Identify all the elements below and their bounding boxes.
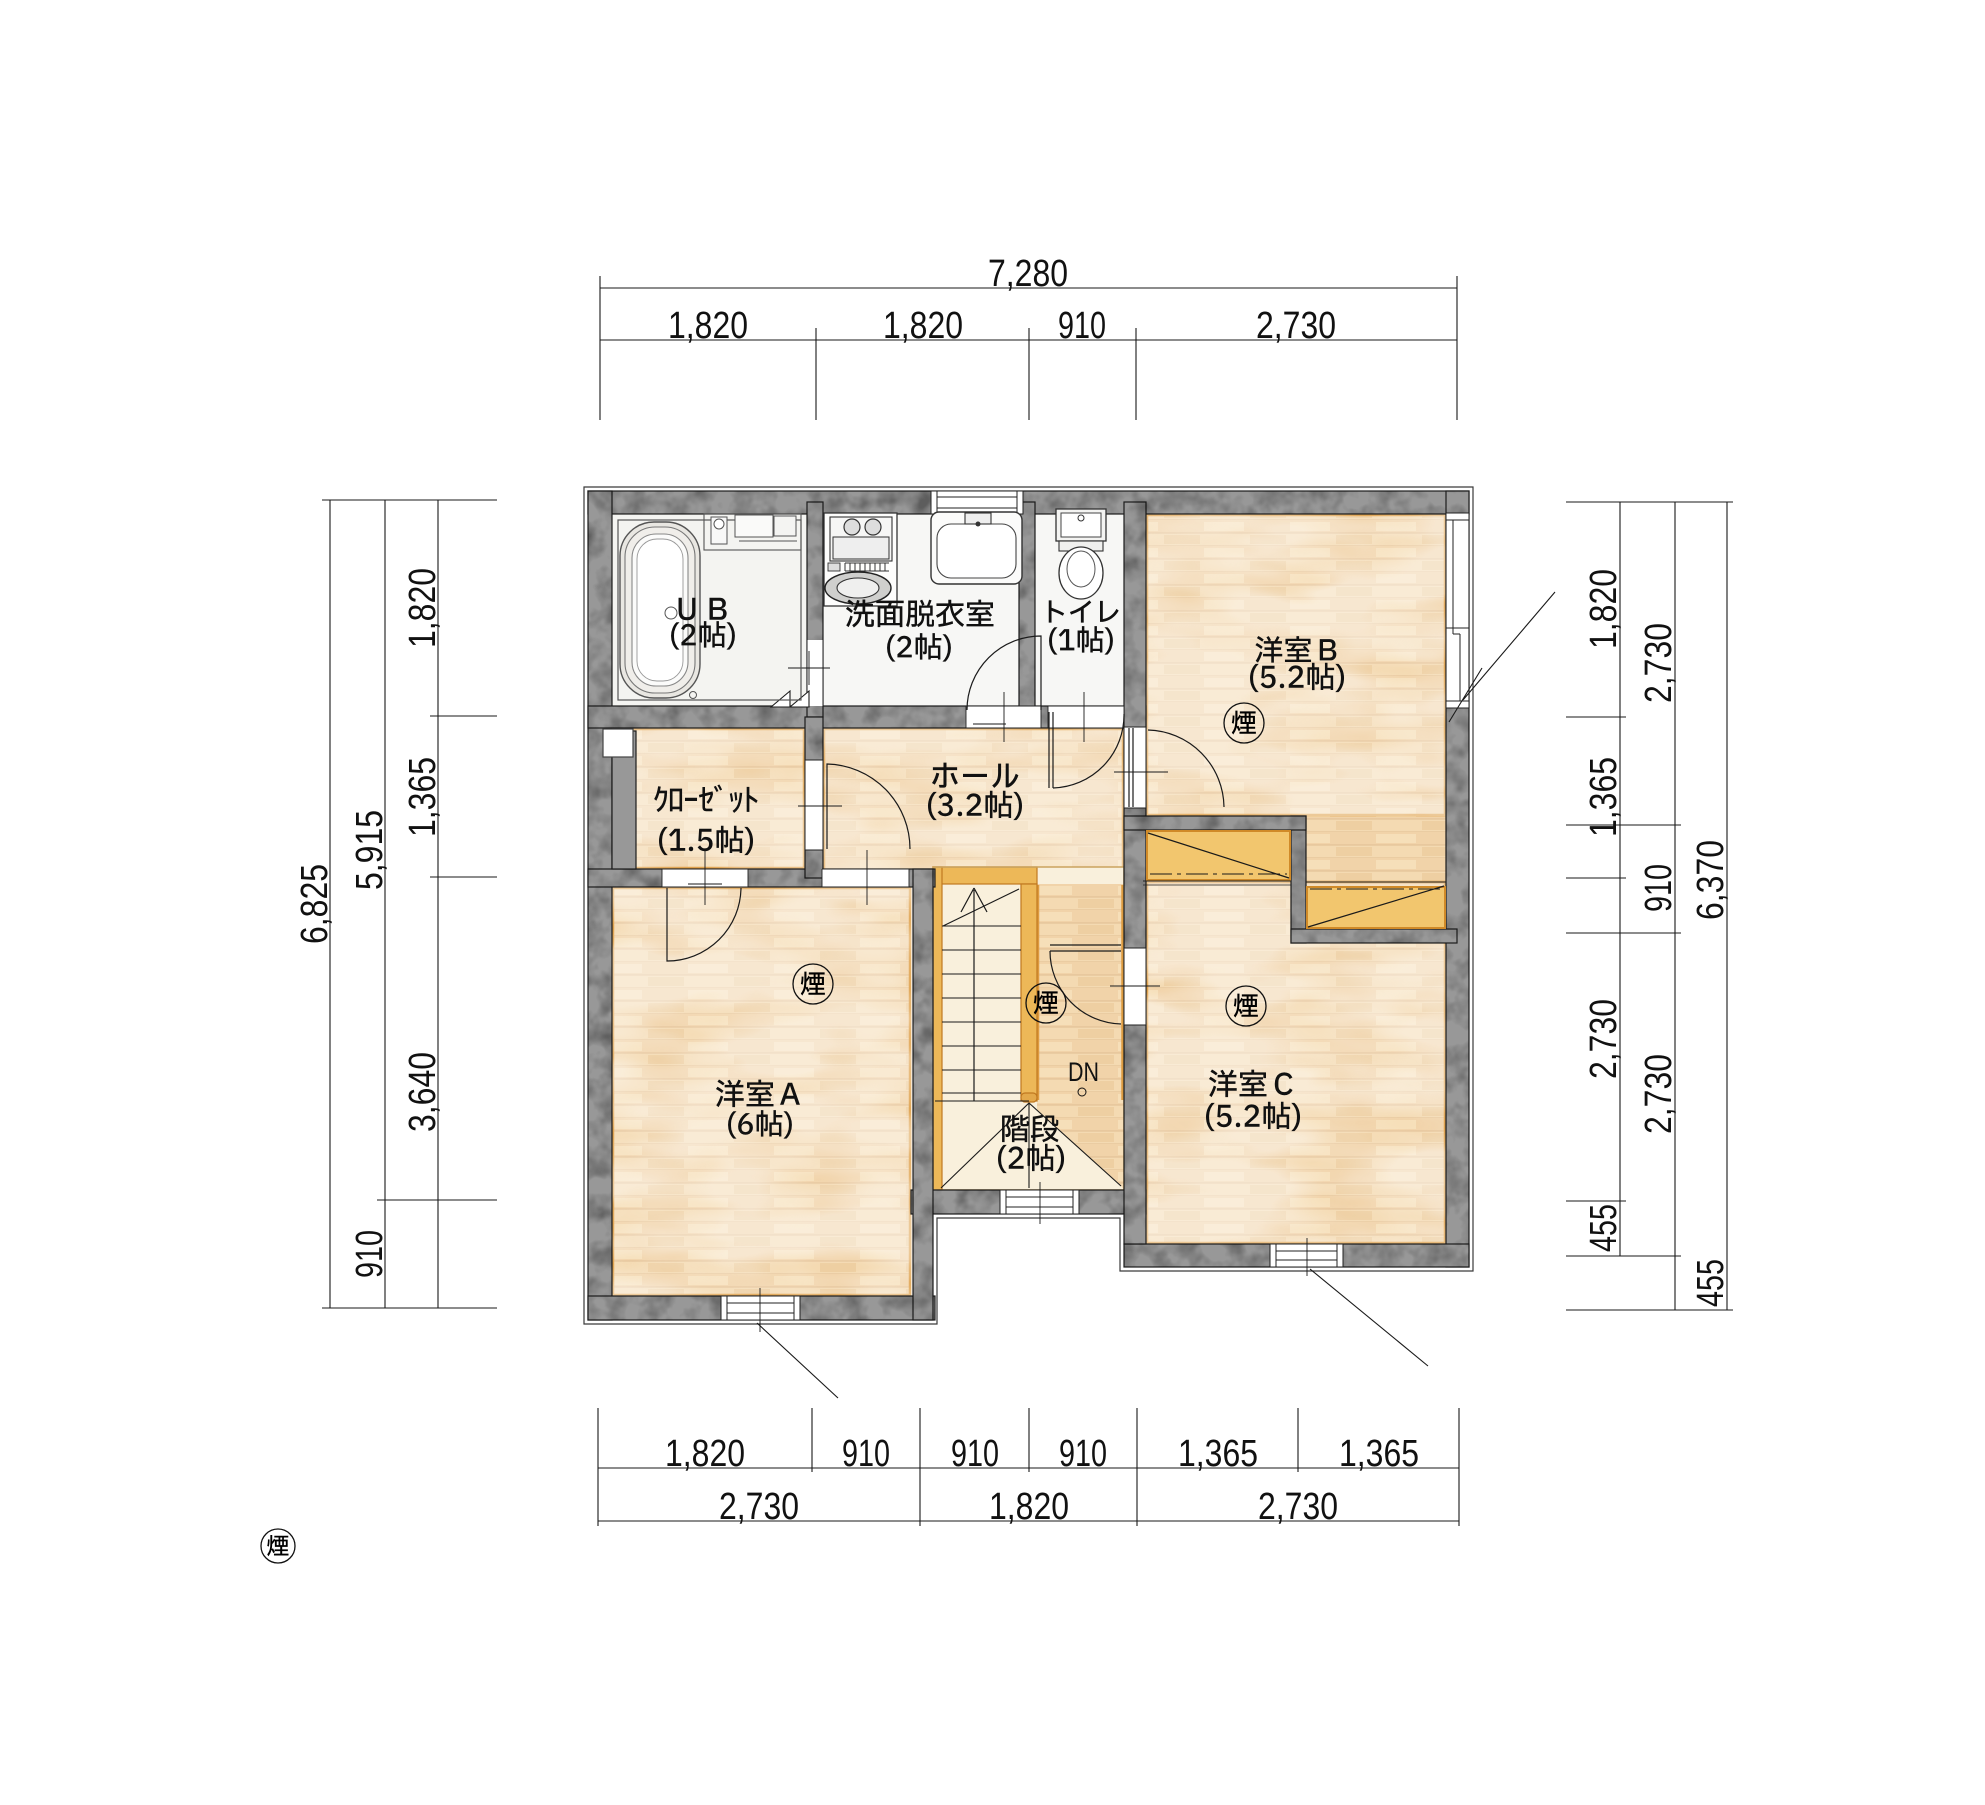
svg-text:910: 910 <box>1638 864 1680 912</box>
svg-text:2,730: 2,730 <box>1256 305 1336 347</box>
svg-text:2,730: 2,730 <box>1638 1054 1680 1134</box>
svg-text:1,365: 1,365 <box>1583 757 1625 837</box>
svg-text:1,820: 1,820 <box>989 1486 1069 1528</box>
svg-text:910: 910 <box>1059 1433 1107 1475</box>
svg-text:1,820: 1,820 <box>668 305 748 347</box>
svg-text:1,365: 1,365 <box>1339 1433 1419 1475</box>
svg-text:6,370: 6,370 <box>1690 840 1732 920</box>
svg-text:910: 910 <box>951 1433 999 1475</box>
svg-text:7,280: 7,280 <box>988 253 1068 295</box>
svg-text:1,365: 1,365 <box>402 757 444 837</box>
svg-text:DN: DN <box>1068 1057 1099 1087</box>
svg-text:2,730: 2,730 <box>1583 999 1625 1079</box>
svg-text:5,915: 5,915 <box>349 810 391 890</box>
svg-text:1,820: 1,820 <box>1583 569 1625 649</box>
svg-text:910: 910 <box>1058 305 1106 347</box>
svg-text:910: 910 <box>842 1433 890 1475</box>
svg-text:910: 910 <box>349 1230 391 1278</box>
svg-text:3,640: 3,640 <box>402 1052 444 1132</box>
svg-text:1,820: 1,820 <box>883 305 963 347</box>
svg-text:455: 455 <box>1583 1204 1625 1252</box>
svg-text:1,365: 1,365 <box>1178 1433 1258 1475</box>
svg-text:2,730: 2,730 <box>1258 1486 1338 1528</box>
svg-text:6,825: 6,825 <box>294 864 336 944</box>
svg-text:2,730: 2,730 <box>719 1486 799 1528</box>
svg-text:455: 455 <box>1690 1259 1732 1307</box>
svg-text:2,730: 2,730 <box>1638 623 1680 703</box>
svg-text:1,820: 1,820 <box>402 568 444 648</box>
svg-text:1,820: 1,820 <box>665 1433 745 1475</box>
